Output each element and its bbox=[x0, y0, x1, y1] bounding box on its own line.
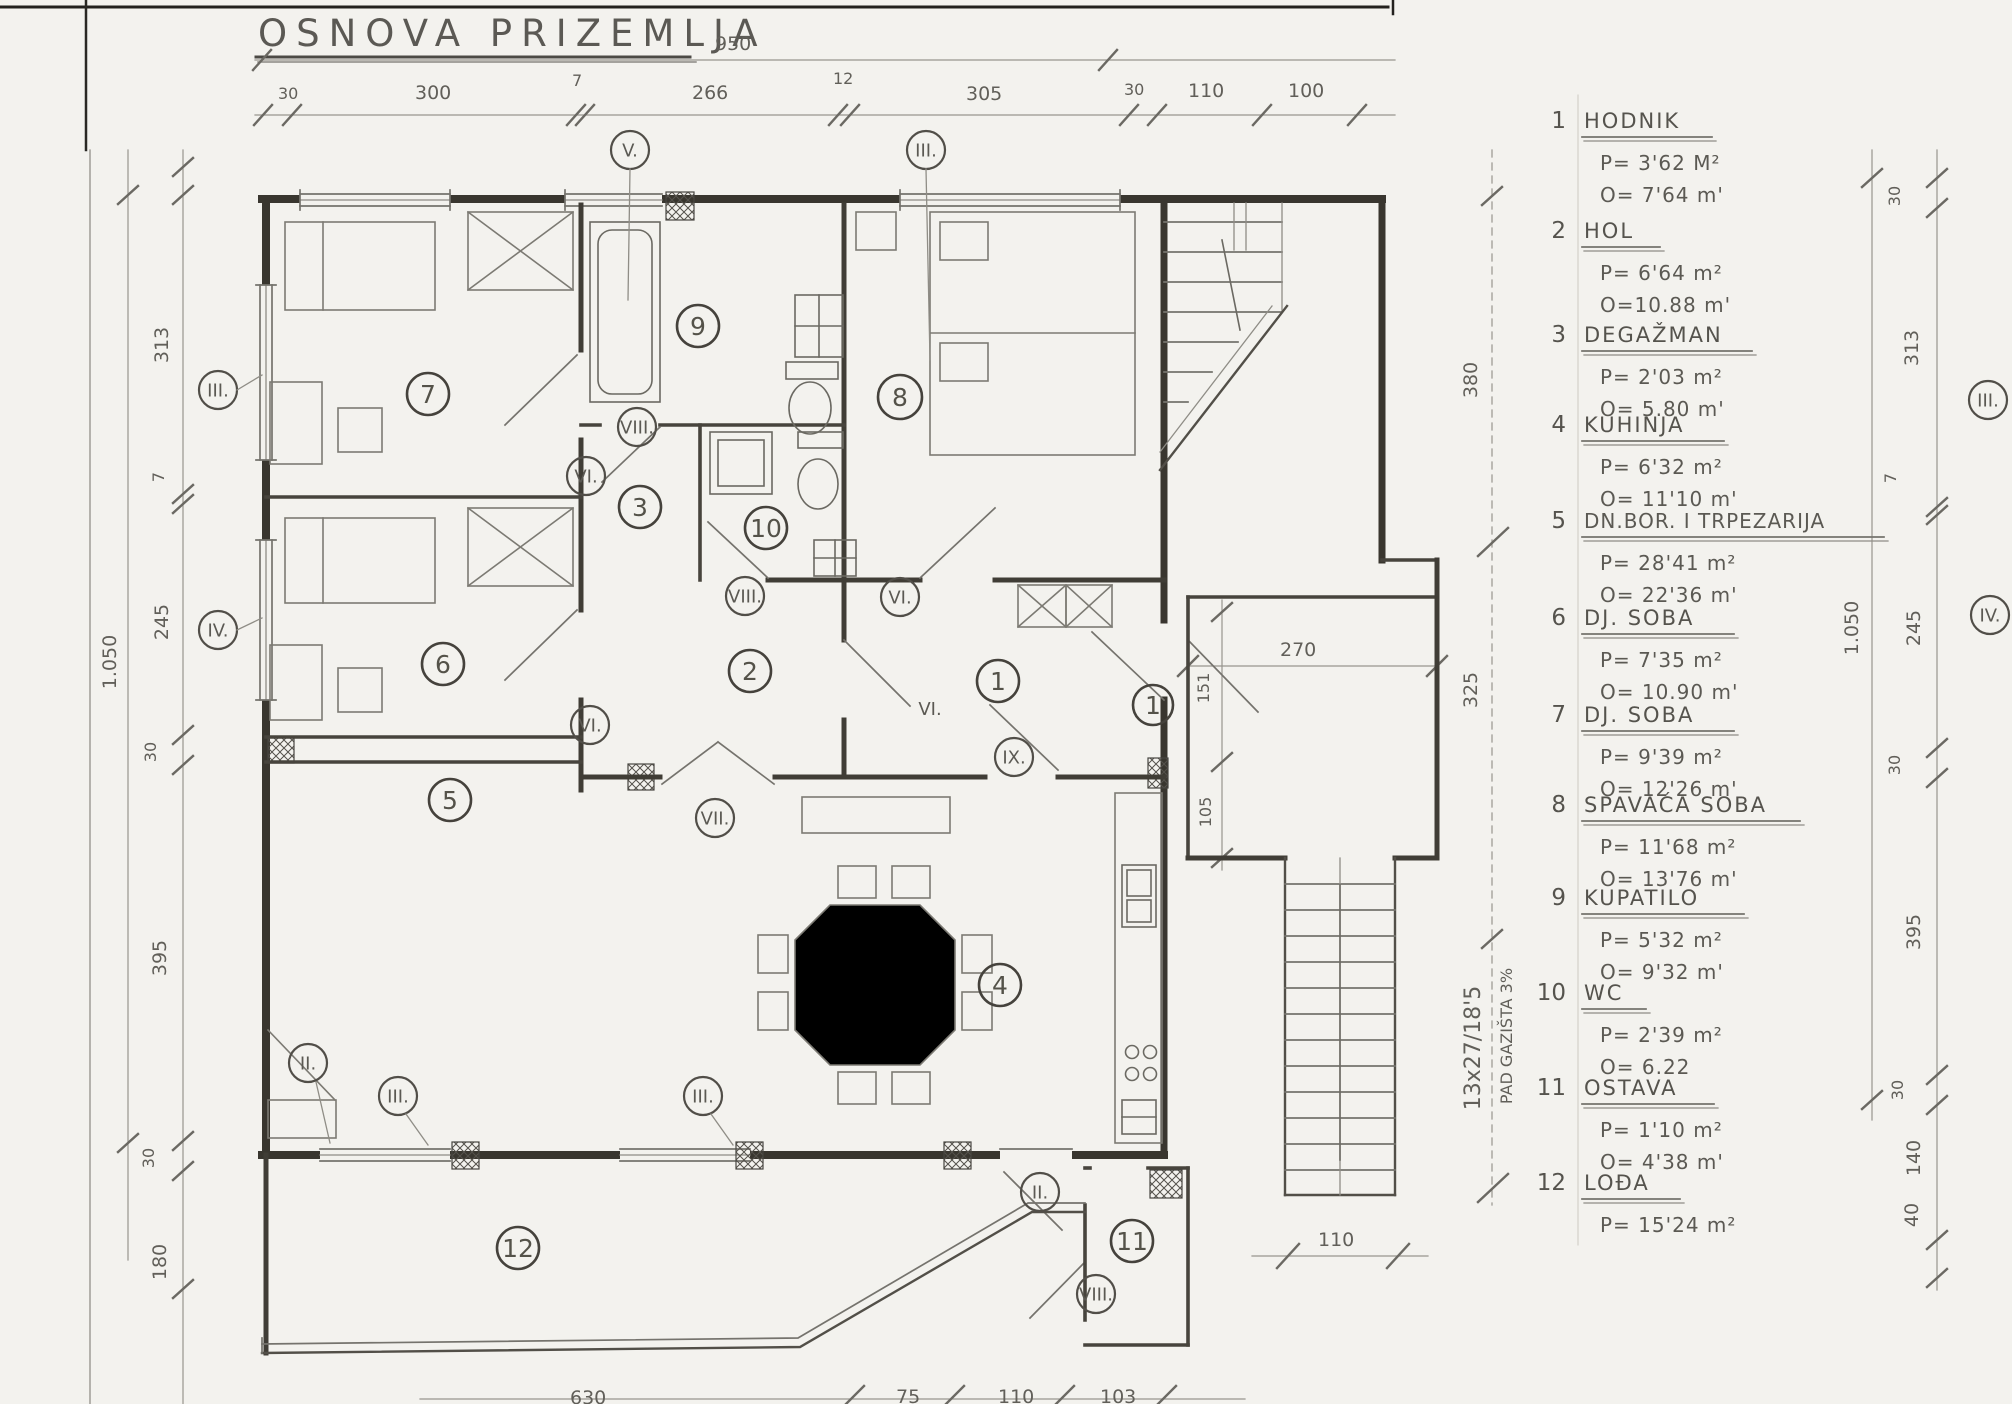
dim-left-30b: 30 bbox=[139, 1148, 158, 1168]
legend-11-num: 11 bbox=[1537, 1075, 1566, 1101]
hatched-blocks bbox=[268, 192, 1182, 1198]
legend-4-name: KUHINJA bbox=[1584, 413, 1684, 437]
legend-3-area: P= 2'03 m² bbox=[1600, 365, 1723, 389]
dim-left-245: 245 bbox=[151, 604, 173, 640]
legend-5-area: P= 28'41 m² bbox=[1600, 551, 1736, 575]
type-ix-marker: IX. bbox=[1002, 747, 1025, 768]
dim-r-30b: 30 bbox=[1885, 755, 1904, 775]
room-5-label: 5 bbox=[442, 786, 458, 815]
dimension-chain-bottom: 630 75 110 103 bbox=[420, 1386, 1245, 1404]
dim-105: 105 bbox=[1196, 797, 1215, 828]
room-10-label: 10 bbox=[750, 514, 782, 543]
dim-bottom-103: 103 bbox=[1100, 1386, 1136, 1404]
legend-7-num: 7 bbox=[1551, 702, 1566, 728]
legend-3-name: DEGAŽMAN bbox=[1584, 322, 1723, 347]
legend-10-area: P= 2'39 m² bbox=[1600, 1023, 1723, 1047]
legend-8-num: 8 bbox=[1551, 792, 1566, 818]
legend-7-name: DJ. SOBA bbox=[1584, 703, 1694, 727]
type-vi-room7-marker: VI. bbox=[574, 466, 597, 487]
legend-2-area: P= 6'64 m² bbox=[1600, 261, 1723, 285]
dim-left-395: 395 bbox=[149, 940, 171, 976]
type-viii-ostava-marker: VIII. bbox=[1079, 1284, 1113, 1305]
room-1b-label: 1 bbox=[1145, 691, 1161, 720]
dim-r-30a: 30 bbox=[1885, 186, 1904, 206]
dimension-inner-right: 380 325 13x27/18'5 PAD GAZIŠTA 3% bbox=[1460, 150, 1516, 1205]
windows bbox=[256, 190, 1120, 1230]
room-12-label: 12 bbox=[502, 1234, 534, 1263]
dim-r-245: 245 bbox=[1903, 610, 1925, 646]
type-ii-door-marker: II. bbox=[1032, 1182, 1048, 1203]
type-iii-right-marker: III. bbox=[1977, 390, 1999, 411]
type-viii-bath-marker: VIII. bbox=[620, 417, 654, 438]
dim-left-180: 180 bbox=[149, 1244, 171, 1280]
legend-11-area: P= 1'10 m² bbox=[1600, 1118, 1723, 1142]
door-swings bbox=[505, 355, 1258, 1318]
legend-4-num: 4 bbox=[1551, 412, 1566, 438]
type-vi-hall-text: VI. bbox=[918, 699, 941, 720]
dim-top-12: 12 bbox=[833, 69, 853, 88]
room-number-markers: 1 1 2 3 4 5 6 7 8 9 10 11 12 bbox=[407, 305, 1173, 1269]
dim-r-30c: 30 bbox=[1888, 1080, 1907, 1100]
type-iii-top-marker: III. bbox=[915, 140, 937, 161]
legend-6-num: 6 bbox=[1551, 605, 1566, 631]
dim-bottom-630: 630 bbox=[570, 1387, 606, 1404]
type-iii-bottom-a-marker: III. bbox=[387, 1086, 409, 1107]
entry-extension bbox=[1188, 560, 1437, 858]
legend-5-perimeter: O= 22'36 m' bbox=[1600, 583, 1738, 607]
room-8-label: 8 bbox=[892, 383, 908, 412]
legend-2-name: HOL bbox=[1584, 219, 1634, 243]
legend-9-num: 9 bbox=[1551, 885, 1566, 911]
legend-4-area: P= 6'32 m² bbox=[1600, 455, 1723, 479]
title-block: OSNOVA PRIZEMLJA bbox=[256, 12, 767, 62]
legend-10-num: 10 bbox=[1537, 980, 1566, 1006]
opening-type-markers: V. III. III. IV. III. IV. VIII. VI. VIII… bbox=[199, 131, 2009, 1313]
dim-r-40: 40 bbox=[1901, 1203, 1923, 1227]
legend-8-area: P= 11'68 m² bbox=[1600, 835, 1736, 859]
legend-10-name: WC bbox=[1584, 981, 1623, 1005]
dim-r-7: 7 bbox=[1881, 473, 1900, 483]
dim-top-7: 7 bbox=[572, 71, 582, 90]
type-vii-marker: VII. bbox=[701, 808, 730, 829]
room-2-label: 2 bbox=[742, 657, 758, 686]
legend-7-area: P= 9'39 m² bbox=[1600, 745, 1723, 769]
room-4-label: 4 bbox=[992, 971, 1008, 1000]
lower-staircase bbox=[1285, 858, 1395, 1195]
legend-2-perimeter: O=10.88 m' bbox=[1600, 293, 1731, 317]
dim-top-110: 110 bbox=[1188, 80, 1224, 102]
type-iv-right-marker: IV. bbox=[1979, 605, 2000, 626]
interior-walls bbox=[266, 205, 1164, 790]
room-legend: 1 HODNIK P= 3'62 M² O= 7'64 m' 2 HOL P= … bbox=[1537, 95, 1888, 1245]
legend-2-num: 2 bbox=[1551, 218, 1566, 244]
dim-270: 270 bbox=[1280, 639, 1316, 661]
legend-9-name: KUPATILO bbox=[1584, 886, 1699, 910]
dim-top-100: 100 bbox=[1288, 80, 1324, 102]
dim-r-395: 395 bbox=[1903, 914, 1925, 950]
type-iv-left-marker: IV. bbox=[207, 620, 228, 641]
stair-formula-note: 13x27/18'5 bbox=[1461, 986, 1486, 1110]
dim-top-30a: 30 bbox=[278, 84, 298, 103]
legend-9-area: P= 5'32 m² bbox=[1600, 928, 1723, 952]
floor-plan-drawing: OSNOVA PRIZEMLJA 950 30 300 7 266 12 305… bbox=[0, 0, 2012, 1404]
dim-top-300: 300 bbox=[415, 82, 451, 104]
type-iii-left-marker: III. bbox=[207, 380, 229, 401]
dim-bottom-110: 110 bbox=[998, 1386, 1034, 1404]
legend-1-perimeter: O= 7'64 m' bbox=[1600, 183, 1724, 207]
legend-5-num: 5 bbox=[1551, 508, 1566, 534]
legend-6-name: DJ. SOBA bbox=[1584, 606, 1694, 630]
legend-3-num: 3 bbox=[1551, 322, 1566, 348]
dimension-chain-right: 1.050 30 313 7 245 30 395 30 140 40 bbox=[1841, 150, 1947, 1290]
room-7-label: 7 bbox=[420, 380, 436, 409]
room-6-label: 6 bbox=[435, 650, 451, 679]
dim-top-305: 305 bbox=[966, 83, 1002, 105]
legend-6-perimeter: O= 10.90 m' bbox=[1600, 680, 1738, 704]
dim-380: 380 bbox=[1460, 362, 1482, 398]
floor-plan-scan: OSNOVA PRIZEMLJA 950 30 300 7 266 12 305… bbox=[0, 0, 2012, 1404]
dim-r-140: 140 bbox=[1903, 1140, 1925, 1176]
dim-left-total: 1.050 bbox=[99, 635, 121, 689]
dim-right-total: 1.050 bbox=[1841, 601, 1863, 655]
upper-staircase bbox=[1160, 203, 1287, 470]
type-ii-left-marker: II. bbox=[300, 1053, 316, 1074]
type-v-marker: V. bbox=[622, 140, 638, 161]
type-viii-wc-marker: VIII. bbox=[728, 586, 762, 607]
legend-8-name: SPAVAĆA SOBA bbox=[1584, 792, 1767, 817]
drawing-title: OSNOVA PRIZEMLJA bbox=[258, 12, 767, 55]
loggia bbox=[262, 1155, 1085, 1353]
dim-151: 151 bbox=[1194, 673, 1213, 704]
dim-325: 325 bbox=[1460, 672, 1482, 708]
dim-r-313: 313 bbox=[1901, 330, 1923, 366]
dim-top-30b: 30 bbox=[1124, 80, 1144, 99]
legend-12-name: LOĐA bbox=[1584, 1171, 1650, 1195]
legend-12-area: P= 15'24 m² bbox=[1600, 1213, 1736, 1237]
legend-1-num: 1 bbox=[1551, 108, 1566, 134]
legend-6-area: P= 7'35 m² bbox=[1600, 648, 1723, 672]
dim-stairs-110: 110 bbox=[1318, 1229, 1354, 1251]
type-vi-room6-marker: VI. bbox=[578, 715, 601, 736]
dim-left-30a: 30 bbox=[141, 742, 160, 762]
room-9-label: 9 bbox=[690, 312, 706, 341]
legend-1-area: P= 3'62 M² bbox=[1600, 151, 1720, 175]
room-1-label: 1 bbox=[990, 667, 1006, 696]
dim-left-313: 313 bbox=[151, 327, 173, 363]
furniture bbox=[268, 212, 1162, 1143]
legend-11-name: OSTAVA bbox=[1584, 1076, 1677, 1100]
dimension-entry: 270 151 105 110 bbox=[1178, 600, 1447, 1268]
legend-12-num: 12 bbox=[1537, 1170, 1566, 1196]
dim-left-7: 7 bbox=[149, 472, 168, 482]
dimension-chain-left: 1.050 313 7 245 30 395 30 180 bbox=[99, 150, 193, 1404]
dim-top-total: 950 bbox=[715, 33, 751, 55]
legend-1-name: HODNIK bbox=[1584, 109, 1680, 133]
stair-slope-note: PAD GAZIŠTA 3% bbox=[1497, 968, 1516, 1104]
legend-4-perimeter: O= 11'10 m' bbox=[1600, 487, 1738, 511]
room-3-label: 3 bbox=[632, 493, 648, 522]
dim-top-266: 266 bbox=[692, 82, 728, 104]
room-11-label: 11 bbox=[1116, 1227, 1148, 1256]
legend-5-name: DN.BOR. I TRPEZARIJA bbox=[1584, 509, 1825, 533]
dim-bottom-75: 75 bbox=[896, 1386, 920, 1404]
type-vi-room8-marker: VI. bbox=[888, 587, 911, 608]
type-iii-bottom-b-marker: III. bbox=[692, 1086, 714, 1107]
